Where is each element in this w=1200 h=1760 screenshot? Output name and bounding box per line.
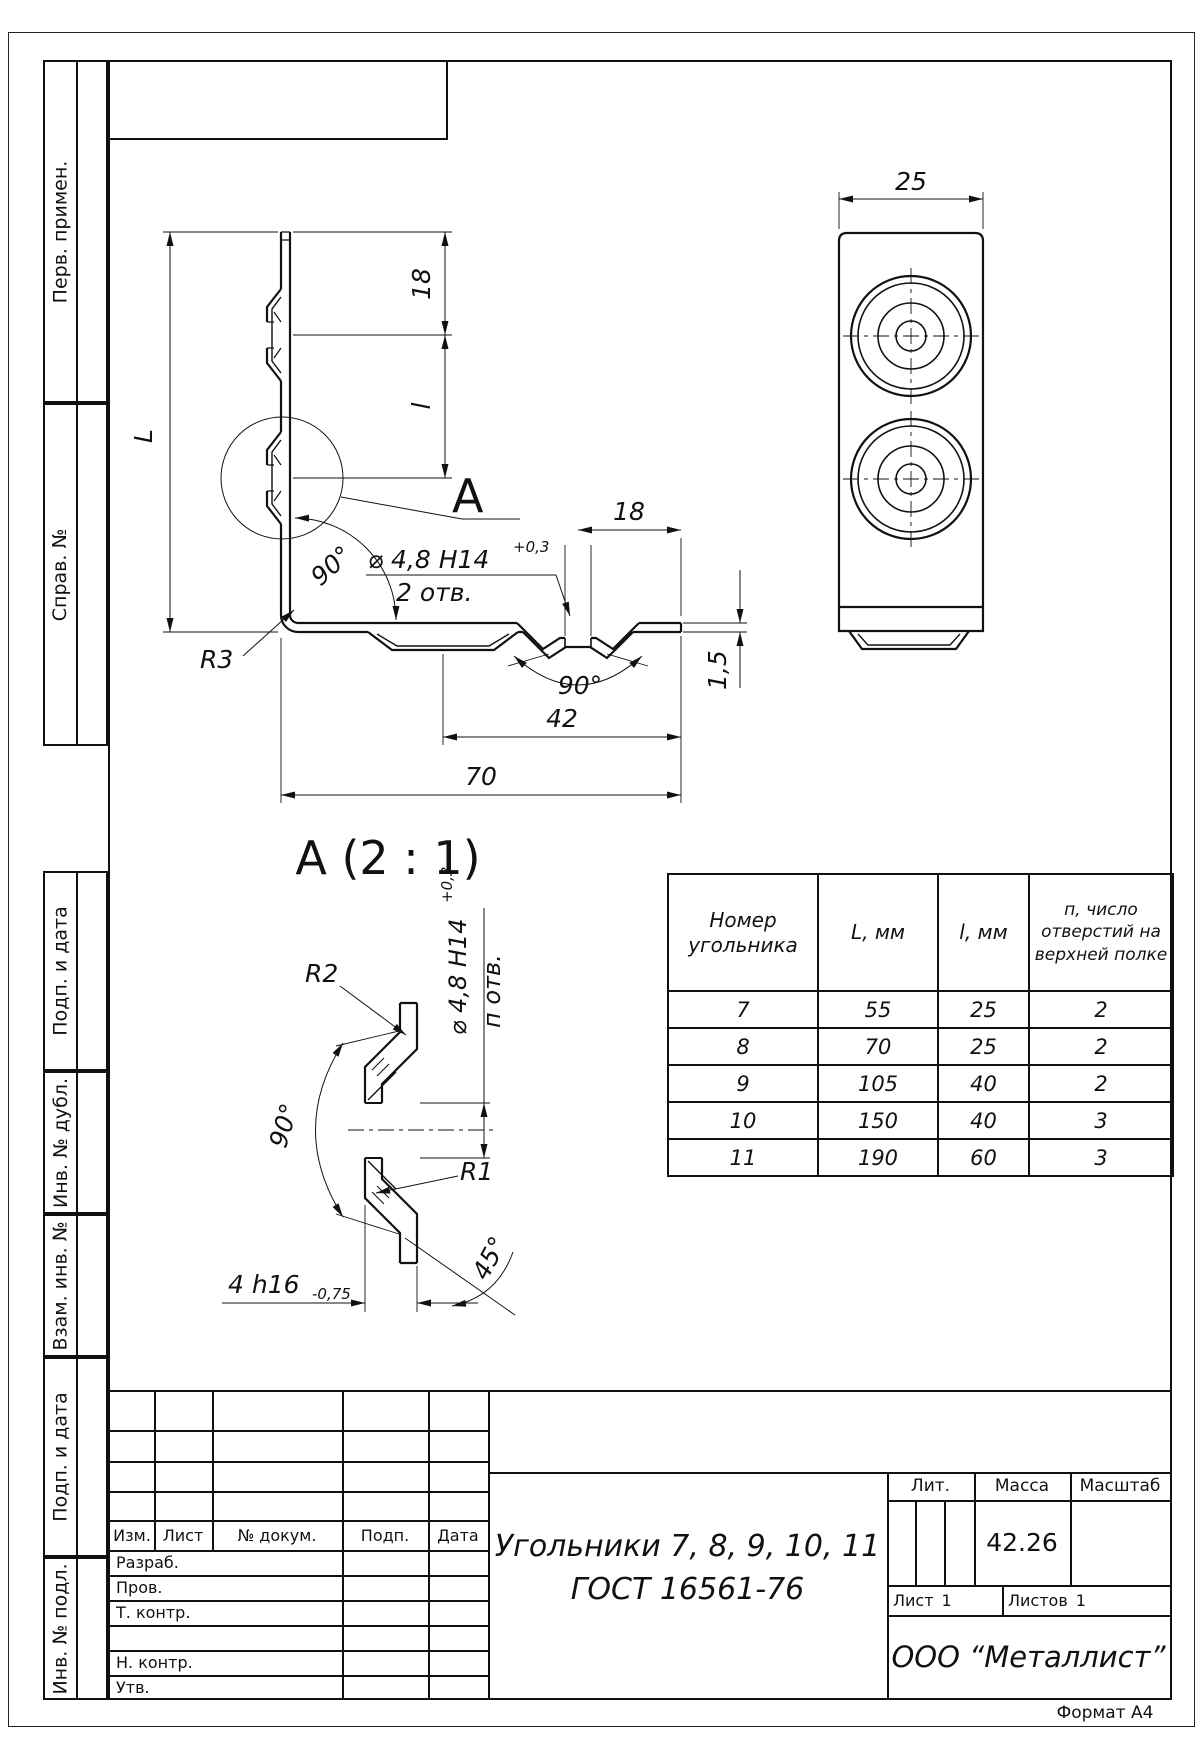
row-nkontr: Н. контр. [110, 1650, 212, 1675]
cell: 2 [1029, 1065, 1173, 1102]
margin-label: Справ. № [50, 528, 72, 620]
cell: 2 [1029, 1028, 1173, 1065]
title-block: Изм. Лист № докум. Подп. Дата Разраб. Пр… [108, 1390, 1172, 1700]
cell: 9 [668, 1065, 818, 1102]
cell: 25 [938, 1028, 1029, 1065]
cell: 3 [1029, 1139, 1173, 1176]
cell: 3 [1029, 1102, 1173, 1139]
margin-label: Взам. инв. № [50, 1221, 72, 1350]
col-izm: Изм. [110, 1520, 154, 1550]
row-tkontr: Т. контр. [110, 1600, 212, 1625]
row-prov: Пров. [110, 1575, 212, 1600]
table-row: 7 55 25 2 [668, 991, 1173, 1028]
mass-label: Масса [974, 1472, 1070, 1500]
margin-label-cell: Инв. № дубл. [45, 1073, 78, 1212]
cell: 190 [818, 1139, 938, 1176]
margin-box-inv-dubl: Инв. № дубл. [43, 1071, 108, 1214]
row-utv: Утв. [110, 1675, 212, 1700]
table-row: 8 70 25 2 [668, 1028, 1173, 1065]
margin-box-vzam-inv: Взам. инв. № [43, 1214, 108, 1357]
cell: 2 [1029, 991, 1173, 1028]
margin-box-perv-primen: Перв. примен. [43, 60, 108, 403]
table-row: 10 150 40 3 [668, 1102, 1173, 1139]
title-line1: Угольники 7, 8, 9, 10, 11 [495, 1529, 880, 1564]
cell: 60 [938, 1139, 1029, 1176]
table-header-holes: п, число отверстий на верхней полке [1029, 874, 1173, 991]
drawing-sheet: Перв. примен. Справ. № Подп. и дата Инв.… [0, 0, 1200, 1760]
cell: 105 [818, 1065, 938, 1102]
margin-label-cell: Взам. инв. № [45, 1216, 78, 1355]
margin-label: Инв. № дубл. [50, 1078, 72, 1208]
sheets-value: 1 [1076, 1591, 1086, 1610]
sheets-cell: Листов 1 [1002, 1585, 1170, 1615]
margin-label: Инв. № подл. [50, 1563, 72, 1694]
cell: 40 [938, 1102, 1029, 1139]
top-left-box [108, 60, 448, 140]
table-header-number: Номер угольника [668, 874, 818, 991]
sheet-value: 1 [942, 1591, 952, 1610]
table-row: 9 105 40 2 [668, 1065, 1173, 1102]
margin-label: Подп. и дата [50, 1392, 72, 1521]
margin-label-cell: Перв. примен. [45, 62, 78, 401]
cell: 7 [668, 991, 818, 1028]
cell: 11 [668, 1139, 818, 1176]
margin-label: Перв. примен. [50, 160, 72, 303]
mass-value: 42.26 [974, 1500, 1070, 1585]
parameters-table: Номер угольника L, мм l, мм п, число отв… [667, 873, 1174, 1177]
sheets-label: Листов [1008, 1591, 1068, 1610]
cell: 70 [818, 1028, 938, 1065]
margin-label-cell: Подп. и дата [45, 873, 78, 1069]
document-title: Угольники 7, 8, 9, 10, 11 ГОСТ 16561-76 [488, 1472, 887, 1698]
cell: 40 [938, 1065, 1029, 1102]
title-line2: ГОСТ 16561-76 [571, 1572, 805, 1607]
cell: 150 [818, 1102, 938, 1139]
lit-label: Лит. [887, 1472, 974, 1500]
margin-label: Подп. и дата [50, 906, 72, 1035]
margin-box-podp-data-1: Подп. и дата [43, 871, 108, 1071]
scale-label: Масштаб [1070, 1472, 1170, 1500]
col-list: Лист [154, 1520, 212, 1550]
cell: 8 [668, 1028, 818, 1065]
table-row: 11 190 60 3 [668, 1139, 1173, 1176]
margin-box-podp-data-2: Подп. и дата [43, 1357, 108, 1557]
cell: 55 [818, 991, 938, 1028]
margin-box-sprav-no: Справ. № [43, 403, 108, 746]
sheet-label: Лист [893, 1591, 934, 1610]
format-label: Формат А4 [1040, 1703, 1170, 1723]
col-podp: Подп. [342, 1520, 428, 1550]
margin-label-cell: Подп. и дата [45, 1359, 78, 1555]
col-dokum: № докум. [212, 1520, 342, 1550]
cell: 10 [668, 1102, 818, 1139]
cell: 25 [938, 991, 1029, 1028]
company-name: ООО “Металлист” [887, 1615, 1170, 1698]
table-header-L: L, мм [818, 874, 938, 991]
row-razrab: Разраб. [110, 1550, 212, 1575]
margin-label-cell: Справ. № [45, 405, 78, 744]
margin-label-cell: Инв. № подл. [45, 1559, 78, 1698]
table-header-l: l, мм [938, 874, 1029, 991]
sheet-cell: Лист 1 [887, 1585, 1002, 1615]
margin-box-inv-podl: Инв. № подл. [43, 1557, 108, 1700]
col-data: Дата [428, 1520, 488, 1550]
